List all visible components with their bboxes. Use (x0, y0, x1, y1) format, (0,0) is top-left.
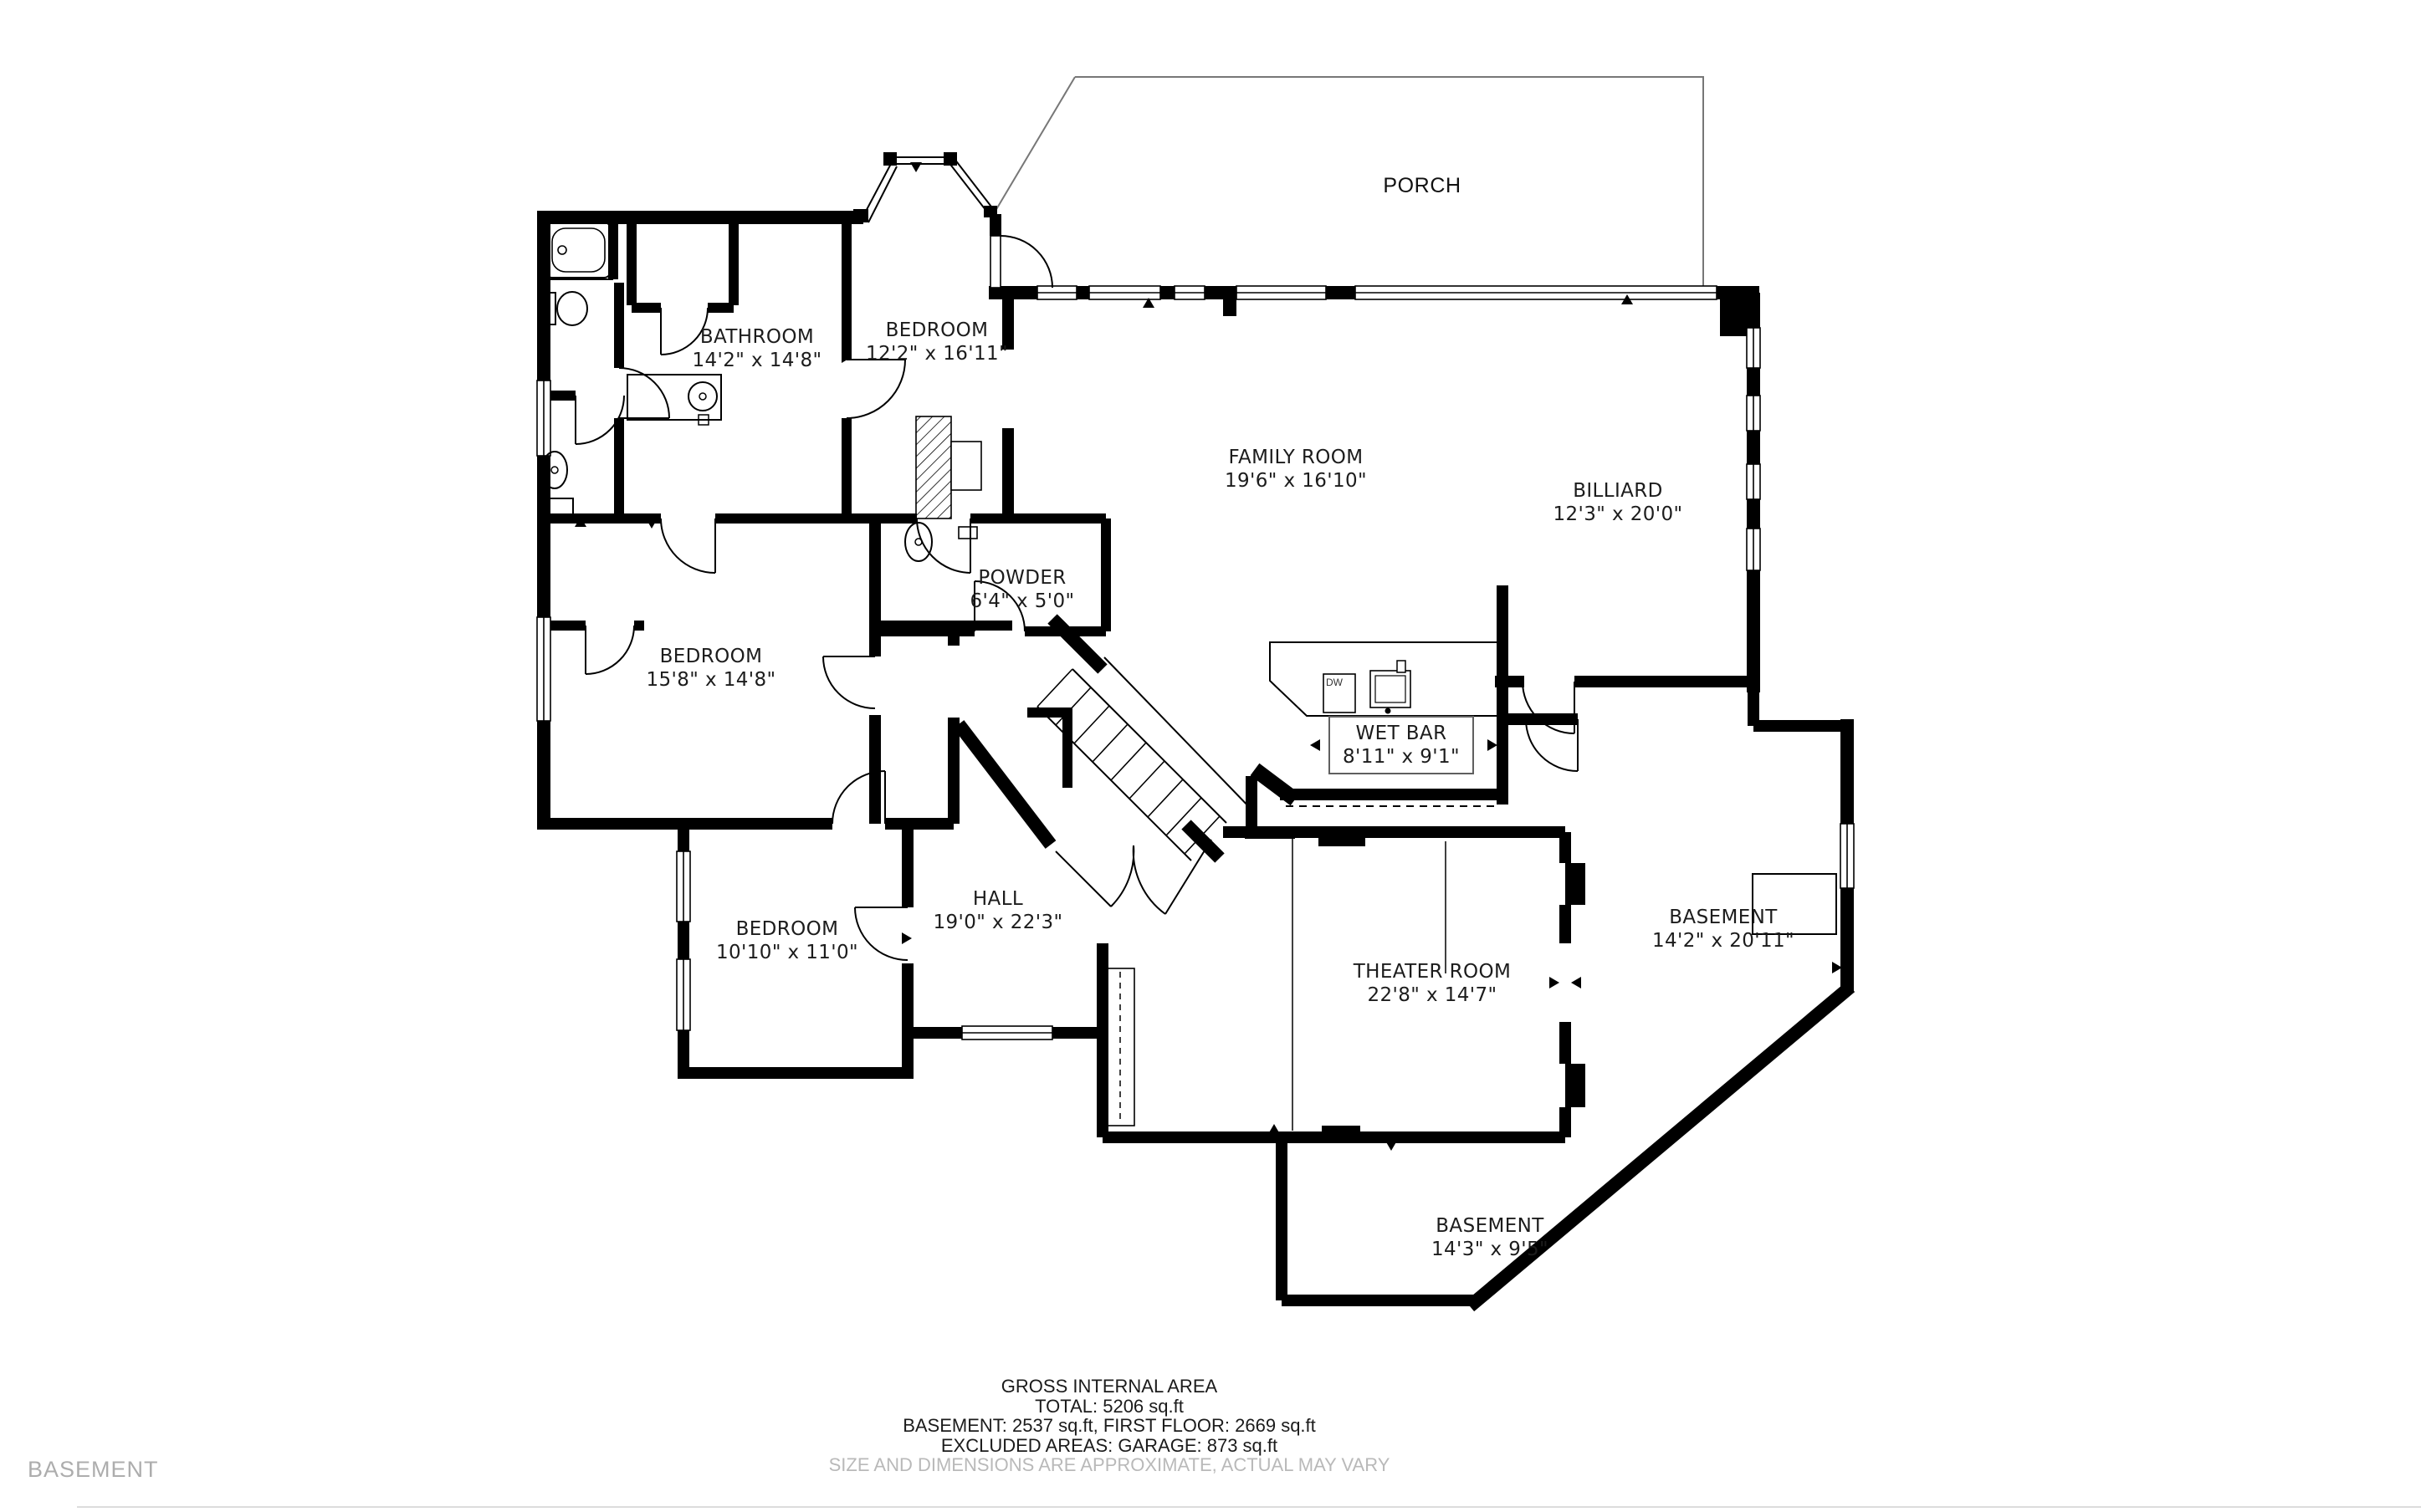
floor-tag: BASEMENT (28, 1457, 159, 1483)
room-label-basement-right: BASEMENT 14'2" x 20'11" (1652, 906, 1794, 953)
room-name: BATHROOM (700, 326, 814, 348)
room-name: BEDROOM (736, 918, 839, 940)
theater-screen (1106, 835, 1292, 1131)
porch-outline (996, 77, 1703, 289)
room-name: BEDROOM (660, 646, 763, 667)
room-label-hall: HALL 19'0" x 22'3" (933, 887, 1062, 934)
room-dims: 14'3" x 9'5" (1431, 1238, 1548, 1261)
room-label-wet-bar: WET BAR 8'11" x 9'1" (1328, 716, 1474, 774)
room-dims: 22'8" x 14'7" (1354, 983, 1512, 1007)
chimney-hatch (916, 416, 981, 518)
room-name: THEATER ROOM (1354, 961, 1512, 983)
room-label-porch: PORCH (1383, 174, 1461, 197)
room-dims: 8'11" x 9'1" (1343, 745, 1460, 769)
dishwasher-label: DW (1326, 677, 1344, 688)
room-dims: 6'4" x 5'0" (970, 590, 1075, 613)
room-dims: 19'0" x 22'3" (933, 911, 1062, 934)
room-name: HALL (973, 888, 1023, 910)
floorplan-page: { "page": { "background": "#ffffff", "wa… (0, 0, 2421, 1512)
room-label-theater-room: THEATER ROOM 22'8" x 14'7" (1354, 960, 1512, 1007)
bathtub-icon (542, 222, 611, 278)
room-label-family-room: FAMILY ROOM 19'6" x 16'10" (1225, 446, 1367, 493)
room-dims: 14'2" x 20'11" (1652, 929, 1794, 953)
room-name: BASEMENT (1436, 1215, 1543, 1237)
room-label-bathroom: BATHROOM 14'2" x 14'8" (692, 325, 822, 372)
room-name: PORCH (1383, 174, 1461, 197)
area-summary-title: GROSS INTERNAL AREA (829, 1377, 1390, 1397)
room-name: BASEMENT (1669, 907, 1777, 928)
wetbar-counter: DW (1270, 642, 1497, 973)
room-name: WET BAR (1356, 723, 1447, 744)
area-summary-excluded: EXCLUDED AREAS: GARAGE: 873 sq.ft (829, 1436, 1390, 1456)
room-label-basement-bottom: BASEMENT 14'3" x 9'5" (1431, 1214, 1548, 1261)
room-label-bedroom-top: BEDROOM 12'2" x 16'11" (866, 319, 1008, 365)
room-dims: 15'8" x 14'8" (646, 668, 775, 692)
powder-sink-icon (905, 523, 977, 561)
room-label-bedroom-middle: BEDROOM 15'8" x 14'8" (646, 645, 775, 692)
room-dims: 12'2" x 16'11" (866, 342, 1008, 365)
area-summary: GROSS INTERNAL AREA TOTAL: 5206 sq.ft BA… (829, 1377, 1390, 1475)
room-name: BEDROOM (886, 319, 989, 341)
bottom-divider (77, 1506, 2421, 1508)
room-dims: 10'10" x 11'0" (716, 941, 858, 964)
room-label-bedroom-small: BEDROOM 10'10" x 11'0" (716, 917, 858, 964)
room-dims: 12'3" x 20'0" (1553, 503, 1682, 526)
room-name: FAMILY ROOM (1228, 447, 1363, 468)
walls (538, 211, 1850, 1306)
area-summary-floors: BASEMENT: 2537 sq.ft, FIRST FLOOR: 2669 … (829, 1416, 1390, 1436)
room-dims: 14'2" x 14'8" (692, 349, 822, 372)
area-summary-disclaimer: SIZE AND DIMENSIONS ARE APPROXIMATE, ACT… (829, 1455, 1390, 1475)
room-name: POWDER (978, 567, 1066, 589)
bay-window (853, 152, 997, 222)
area-summary-total: TOTAL: 5206 sq.ft (829, 1397, 1390, 1417)
floorplan-drawing: DW (0, 0, 2421, 1512)
room-name: BILLIARD (1573, 480, 1663, 502)
room-label-billiard: BILLIARD 12'3" x 20'0" (1553, 479, 1682, 526)
room-label-powder: POWDER 6'4" x 5'0" (970, 566, 1075, 613)
room-dims: 19'6" x 16'10" (1225, 469, 1367, 493)
